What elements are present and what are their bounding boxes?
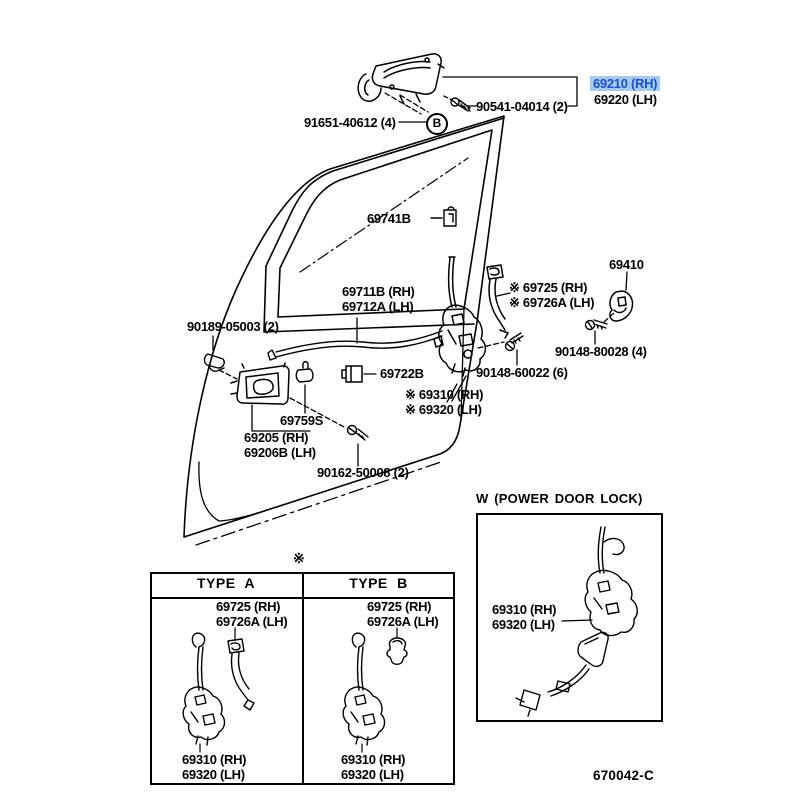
link-rod-69711b-drawing <box>268 318 442 360</box>
callout-69725-69726a[interactable]: ※ 69725 (RH) ※ 69726A (LH) <box>509 280 594 310</box>
callout-69711b-69712a[interactable]: 69711B (RH) 69712A (LH) <box>342 284 415 314</box>
callout-91651-40612[interactable]: 91651-40612 (4) <box>304 115 396 130</box>
power-callout-69310[interactable]: 69310 (RH) 69320 (LH) <box>492 602 556 632</box>
callout-69741b[interactable]: 69741B <box>367 211 411 226</box>
callout-b-circle: B <box>426 113 448 135</box>
table-b-callout-69310[interactable]: 69310 (RH) 69320 (LH) <box>341 752 405 782</box>
callout-90148-60022[interactable]: 90148-60022 (6) <box>476 365 568 380</box>
callout-69310-69320[interactable]: ※ 69310 (RH) ※ 69320 (LH) <box>405 387 483 417</box>
clip-69722b-drawing <box>342 366 376 382</box>
power-door-lock-title: W (POWER DOOR LOCK) <box>476 491 643 506</box>
table-a-callout-69725[interactable]: 69725 (RH) 69726A (LH) <box>216 599 287 629</box>
table-header-type-b: TYPE B <box>302 576 455 591</box>
clip-90189-drawing <box>204 336 237 379</box>
callout-90541-04014[interactable]: 90541-04014 (2) <box>476 99 568 114</box>
inside-handle-bezel-drawing <box>231 363 289 404</box>
screw-90162-drawing <box>348 426 369 467</box>
callout-69205-69206b[interactable]: 69205 (RH) 69206B (LH) <box>244 430 316 460</box>
parts-diagram-page: 69210 (RH) 69220 (LH) 90541-04014 (2) 91… <box>0 0 800 800</box>
screw-90541-drawing <box>451 98 470 111</box>
callout-90148-80028[interactable]: 90148-80028 (4) <box>555 344 647 359</box>
outside-handle-drawing <box>358 54 444 104</box>
callout-90162-50008[interactable]: 90162-50008 (2) <box>317 465 409 480</box>
table-b-callout-69725[interactable]: 69725 (RH) 69726A (LH) <box>367 599 438 629</box>
table-a-callout-69310[interactable]: 69310 (RH) 69320 (LH) <box>182 752 246 782</box>
table-column-divider <box>302 572 304 785</box>
figure-number: 670042-C <box>593 768 654 783</box>
main-lock-69310-drawing <box>434 257 485 402</box>
callout-69220-lh[interactable]: 69220 (LH) <box>594 92 657 107</box>
callout-90189-05003[interactable]: 90189-05003 (2) <box>187 319 279 334</box>
clip-69741b-drawing <box>431 207 456 226</box>
callout-69759s[interactable]: 69759S <box>280 413 323 428</box>
guide-bracket-69725-drawing <box>487 265 510 338</box>
callout-69410[interactable]: 69410 <box>609 257 644 272</box>
callout-69210-rh[interactable]: 69210 (RH) <box>590 76 660 91</box>
callout-69722b[interactable]: 69722B <box>380 366 424 381</box>
table-header-type-a: TYPE A <box>150 576 302 591</box>
table-applicability-star: ※ <box>293 551 305 566</box>
